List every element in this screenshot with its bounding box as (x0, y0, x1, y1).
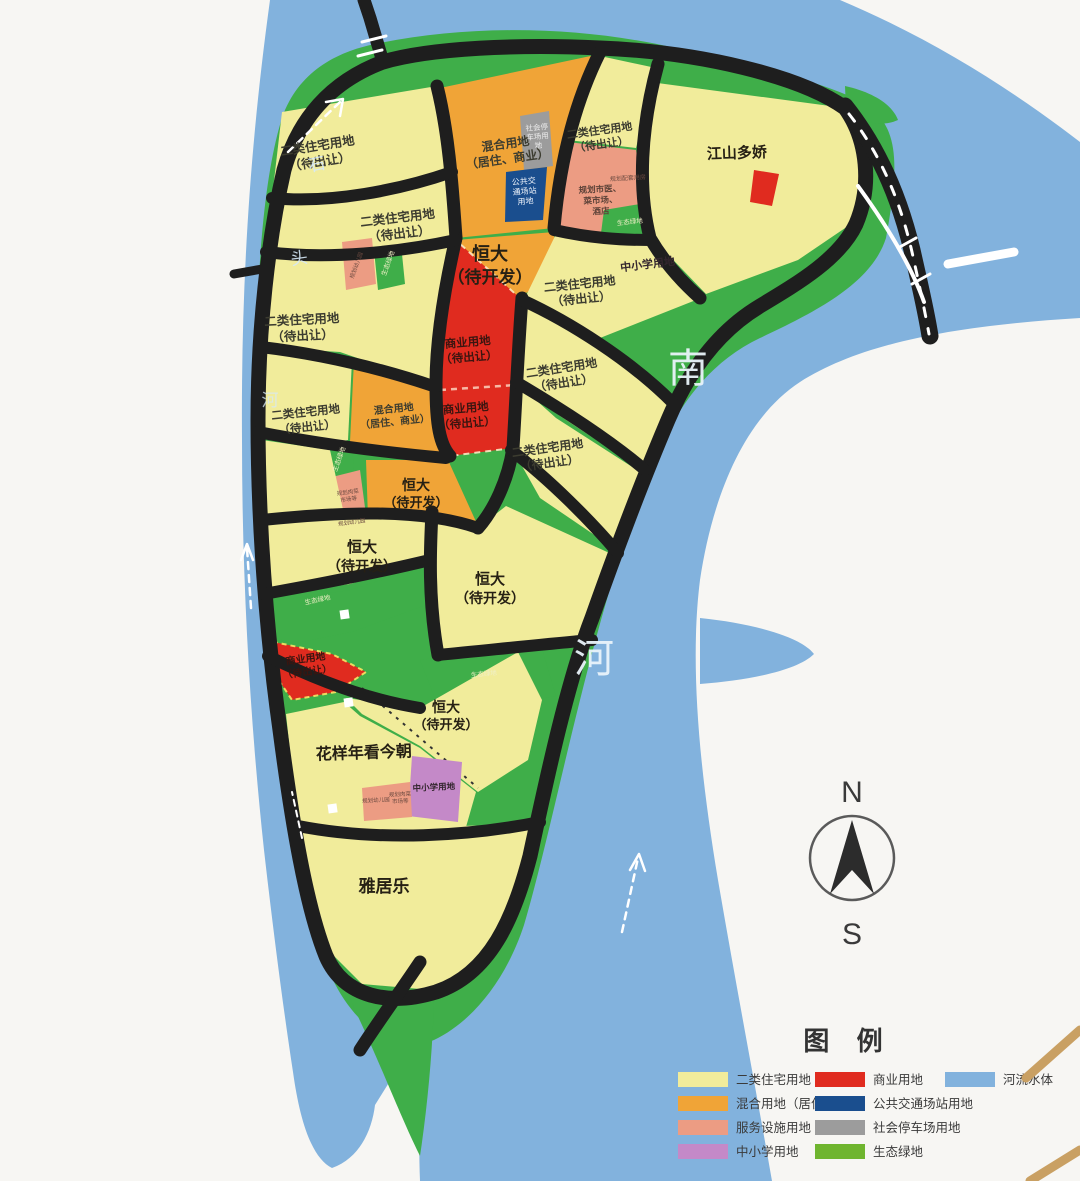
compass-south: S (842, 918, 862, 951)
svg-text:江山多娇: 江山多娇 (707, 143, 769, 163)
svg-text:酒店: 酒店 (592, 206, 610, 217)
label-note-7: 规划肉菜 市场等 (389, 789, 412, 805)
compass-needle-icon (830, 820, 874, 894)
legend-label-school: 中小学用地 (736, 1144, 799, 1159)
svg-text:（待开发）: （待开发） (448, 267, 533, 287)
legend-swatch-eco (815, 1144, 865, 1159)
svg-text:恒大: 恒大 (347, 538, 377, 556)
legend-label-parking: 社会停车场用地 (873, 1120, 961, 1135)
legend-swatch-commercial (815, 1072, 865, 1087)
river-name-south: 南 (668, 347, 708, 391)
legend-swatch-service (678, 1120, 728, 1135)
legend-label-residential: 二类住宅用地 (736, 1072, 812, 1087)
legend-label-commercial: 商业用地 (873, 1072, 924, 1087)
legend-swatch-mixed (678, 1096, 728, 1111)
compass-north: N (841, 776, 863, 809)
planning-map: 二类住宅用地 （待出让） 二类住宅用地 （待出让） 二类住宅用地 （待出让） 二… (0, 0, 1080, 1181)
svg-text:（待开发）: （待开发） (383, 495, 448, 510)
svg-text:通场站: 通场站 (512, 185, 537, 197)
left-river-char-3: 河 (262, 391, 279, 410)
svg-text:恒大: 恒大 (475, 570, 505, 588)
legend-swatch-school (678, 1144, 728, 1159)
tan-stripe-1 (1026, 1030, 1080, 1078)
tan-stripe-2 (1030, 1150, 1080, 1181)
svg-text:（待开发）: （待开发） (327, 558, 397, 574)
svg-text:恒大: 恒大 (472, 243, 508, 264)
legend-label-service: 服务设施用地 (736, 1120, 812, 1135)
svg-text:（待开发）: （待开发） (455, 590, 525, 606)
left-river-char-2: 头 (289, 248, 308, 269)
svg-text:恒大: 恒大 (402, 477, 430, 493)
legend-swatch-river (945, 1072, 995, 1087)
legend-label-eco: 生态绿地 (873, 1144, 924, 1159)
svg-text:公共交: 公共交 (511, 175, 536, 187)
svg-text:（待开发）: （待开发） (413, 717, 478, 732)
map-marker-3 (327, 803, 337, 813)
map-canvas: 二类住宅用地 （待出让） 二类住宅用地 （待出让） 二类住宅用地 （待出让） 二… (0, 0, 1080, 1181)
map-marker-2 (343, 697, 353, 707)
svg-text:菜市场、: 菜市场、 (582, 194, 617, 206)
legend-label-transit: 公共交通场站用地 (873, 1096, 974, 1111)
svg-text:用地: 用地 (517, 195, 534, 206)
label-jiangshan: 江山多娇 (707, 143, 769, 163)
river-name-river: 河 (574, 637, 614, 681)
legend-title: 图 例 (803, 1026, 892, 1056)
svg-text:雅居乐: 雅居乐 (358, 876, 410, 896)
compass: N S (810, 776, 894, 951)
road-pier-stub (234, 268, 268, 274)
legend-swatch-transit (815, 1096, 865, 1111)
label-yajule: 雅居乐 (358, 876, 410, 896)
svg-text:地: 地 (534, 140, 543, 151)
legend-swatch-residential (678, 1072, 728, 1087)
map-marker-1 (339, 609, 349, 619)
legend-swatch-parking (815, 1120, 865, 1135)
road-v7 (430, 512, 438, 655)
svg-text:恒大: 恒大 (432, 699, 460, 715)
